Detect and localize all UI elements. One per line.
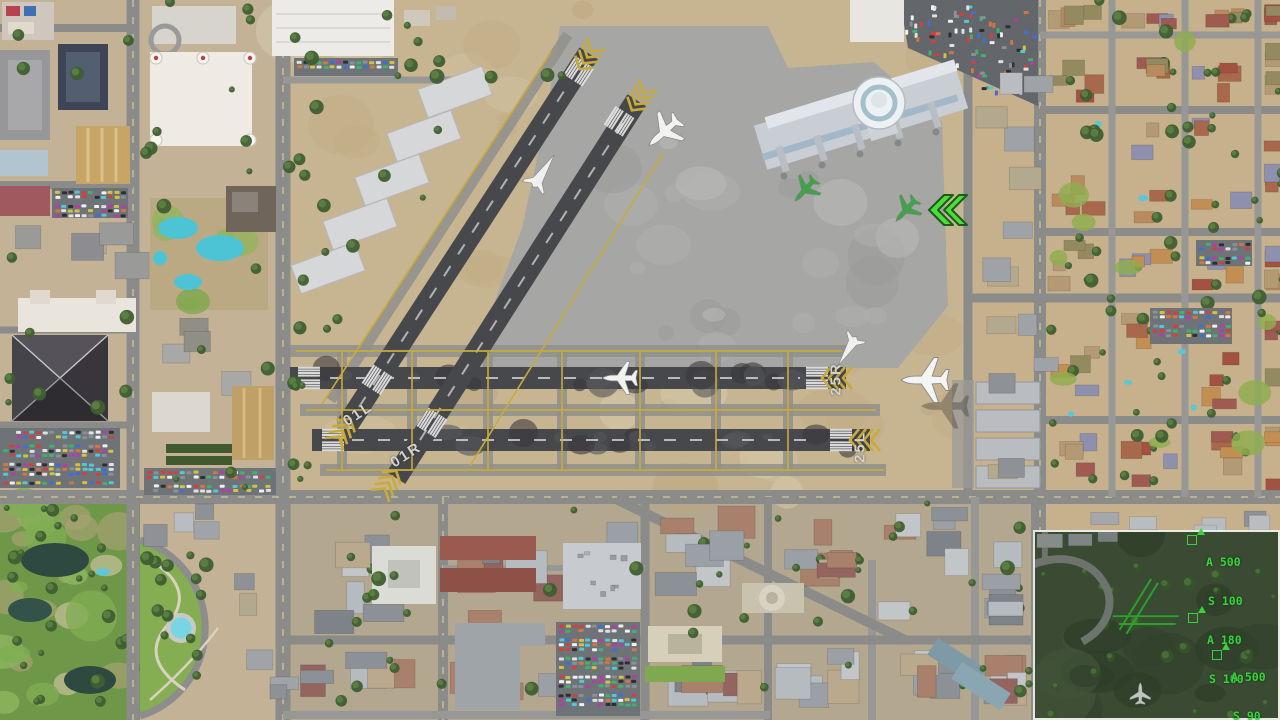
- tree: [158, 200, 166, 208]
- parked-car: [83, 468, 88, 471]
- parked-car: [167, 476, 172, 479]
- parked-car: [931, 5, 934, 10]
- parked-car: [167, 471, 172, 474]
- tree: [1154, 359, 1158, 363]
- building: [1130, 517, 1157, 530]
- tree: [761, 684, 766, 689]
- building: [1264, 432, 1280, 443]
- parked-car: [988, 86, 993, 89]
- ground-texture: [9, 581, 27, 593]
- pool: [1068, 411, 1074, 416]
- parked-car: [356, 61, 361, 64]
- parked-car: [632, 694, 637, 697]
- parked-car: [1199, 334, 1204, 337]
- parking-lot: [556, 622, 640, 716]
- radar-target-labels: A 500 S 90: [1231, 645, 1280, 720]
- parked-car: [565, 630, 570, 633]
- tree: [369, 590, 375, 596]
- building: [878, 602, 910, 620]
- parked-car: [1219, 257, 1224, 260]
- tree: [48, 505, 55, 512]
- parked-car: [1160, 315, 1165, 318]
- parked-car: [213, 476, 218, 479]
- parked-car: [95, 196, 100, 199]
- tree: [174, 477, 177, 480]
- tree: [1171, 252, 1177, 258]
- parked-car: [121, 205, 126, 208]
- tree: [71, 515, 75, 519]
- parked-car: [592, 680, 597, 683]
- parked-car: [586, 699, 591, 702]
- building: [945, 549, 969, 576]
- parked-car: [55, 191, 60, 194]
- parked-car: [559, 648, 564, 651]
- parked-car: [207, 485, 212, 488]
- parked-car: [62, 454, 67, 457]
- tree: [1168, 419, 1174, 425]
- building: [1009, 167, 1041, 190]
- parked-car: [598, 639, 603, 642]
- parked-car: [63, 449, 68, 452]
- ground-texture: [463, 20, 520, 69]
- building: [1266, 72, 1280, 85]
- ground-texture: [658, 325, 674, 340]
- tree: [744, 543, 747, 546]
- parked-car: [983, 38, 986, 43]
- parked-car: [180, 485, 185, 488]
- parked-car: [1179, 315, 1184, 318]
- parked-car: [559, 685, 564, 688]
- parked-car: [977, 75, 982, 78]
- building: [234, 574, 254, 590]
- building: [1249, 515, 1270, 530]
- parked-car: [612, 667, 617, 670]
- parked-car: [585, 662, 590, 665]
- parked-car: [200, 489, 205, 492]
- tree: [348, 554, 353, 559]
- parked-car: [94, 205, 99, 208]
- parked-car: [612, 639, 617, 642]
- tree: [1015, 686, 1022, 693]
- parked-car: [1002, 46, 1007, 49]
- parking-lot: [144, 468, 276, 495]
- parked-car: [605, 681, 610, 684]
- parking-lot: [556, 622, 640, 716]
- gold-tower: [232, 386, 274, 460]
- parked-car: [605, 694, 610, 697]
- parked-car: [598, 625, 603, 628]
- tree: [1081, 90, 1088, 97]
- threshold-bar: [322, 447, 344, 449]
- ground-texture: [568, 435, 595, 454]
- parked-car: [1226, 329, 1231, 332]
- building: [174, 513, 193, 532]
- parked-car: [266, 489, 271, 492]
- parked-car: [9, 454, 14, 457]
- parked-car: [592, 699, 597, 702]
- building: [1265, 246, 1280, 262]
- ground-texture: [802, 248, 839, 278]
- gate-pad: [895, 140, 902, 147]
- building: [315, 610, 354, 633]
- tree: [304, 462, 308, 466]
- radar-minimap[interactable]: A 500 S 100 A 180 S 100 A 500 S 90: [1033, 530, 1280, 720]
- tree: [1153, 213, 1159, 219]
- tree: [1275, 89, 1279, 93]
- castle-flag: [201, 56, 205, 60]
- parked-car: [23, 463, 28, 466]
- parked-car: [598, 629, 603, 632]
- tree: [8, 573, 14, 579]
- runway-label-25R: 25R: [828, 362, 845, 396]
- ground-texture: [572, 1, 593, 20]
- parking-lot: [0, 428, 120, 488]
- parked-car: [82, 481, 87, 484]
- parked-car: [389, 61, 394, 64]
- pool: [174, 274, 202, 290]
- building: [1003, 222, 1032, 239]
- parked-car: [62, 431, 67, 434]
- tree: [1089, 475, 1094, 480]
- ground-texture: [721, 433, 747, 449]
- parked-car: [606, 675, 611, 678]
- tree: [969, 580, 973, 584]
- tree: [434, 126, 439, 131]
- parked-car: [592, 662, 597, 665]
- ground-texture: [676, 166, 727, 200]
- parked-car: [82, 472, 87, 475]
- tree: [1168, 104, 1173, 109]
- parked-car: [1226, 257, 1231, 260]
- building: [1121, 441, 1142, 458]
- tree: [414, 38, 419, 43]
- parked-car: [592, 643, 597, 646]
- parked-car: [330, 61, 335, 64]
- tree: [293, 383, 298, 388]
- parked-car: [56, 449, 61, 452]
- parked-car: [905, 30, 908, 35]
- parked-car: [605, 625, 610, 628]
- parked-car: [625, 657, 630, 660]
- parked-car: [579, 703, 584, 706]
- hangar-apron: [952, 380, 974, 488]
- parked-car: [625, 630, 630, 633]
- tree: [295, 154, 302, 161]
- parked-car: [559, 658, 564, 661]
- parked-car: [612, 694, 617, 697]
- parked-car: [997, 33, 1000, 38]
- parked-car: [62, 468, 67, 471]
- parked-car: [88, 468, 93, 471]
- altitude-readout: A 500: [1206, 556, 1261, 569]
- parked-car: [1206, 257, 1211, 260]
- parked-car: [578, 629, 583, 632]
- parked-car: [102, 214, 107, 217]
- parked-car: [579, 648, 584, 651]
- parked-car: [81, 204, 86, 207]
- tree: [226, 468, 232, 474]
- parked-car: [578, 676, 583, 679]
- parked-car: [76, 444, 81, 447]
- parked-car: [1218, 248, 1223, 251]
- tree: [347, 240, 355, 248]
- parked-car: [566, 643, 571, 646]
- parked-car: [186, 471, 191, 474]
- building: [144, 524, 168, 546]
- parked-car: [612, 685, 617, 688]
- parked-car: [370, 65, 375, 68]
- radar-plane-icon: [1222, 643, 1230, 650]
- hangar: [976, 438, 1040, 460]
- tree: [163, 561, 170, 568]
- parked-car: [995, 90, 998, 95]
- parked-car: [317, 66, 322, 69]
- parked-car: [220, 489, 225, 492]
- parked-car: [592, 625, 597, 628]
- parked-car: [943, 53, 946, 58]
- parked-car: [585, 676, 590, 679]
- tree: [121, 386, 128, 393]
- building: [982, 574, 1020, 590]
- parked-car: [559, 666, 564, 669]
- parked-car: [180, 489, 185, 492]
- parked-car: [55, 209, 60, 212]
- pushback-chevron-indicator[interactable]: [922, 192, 968, 228]
- radar-target-box-icon: [1212, 650, 1222, 660]
- parked-car: [233, 489, 238, 492]
- parked-car: [102, 463, 107, 466]
- building: [0, 186, 50, 216]
- parked-car: [1186, 311, 1191, 314]
- parked-car: [194, 475, 199, 478]
- building: [0, 150, 48, 176]
- tree: [187, 635, 192, 640]
- parked-car: [1206, 311, 1211, 314]
- parked-car: [343, 61, 348, 64]
- parked-car: [350, 61, 355, 64]
- building: [737, 671, 761, 704]
- tree: [390, 572, 395, 577]
- tree: [300, 171, 306, 177]
- tree: [486, 72, 493, 79]
- parked-car: [1239, 243, 1244, 246]
- tree: [337, 696, 343, 702]
- parked-car: [22, 481, 27, 484]
- parked-car: [998, 60, 1003, 63]
- parked-car: [102, 482, 107, 485]
- parked-car: [572, 698, 577, 701]
- parked-car: [377, 66, 382, 69]
- parked-car: [980, 72, 985, 75]
- threshold-bar: [806, 367, 828, 369]
- parked-car: [970, 34, 973, 39]
- parked-car: [173, 490, 178, 493]
- parked-car: [56, 482, 61, 485]
- parked-car: [344, 66, 349, 69]
- radar-target-box-icon: [1187, 535, 1197, 545]
- parked-car: [75, 195, 80, 198]
- tree: [1081, 127, 1089, 135]
- tree: [1212, 68, 1217, 73]
- game-viewport[interactable]: 01L 01R 25R 25L A 500 S 100 A 180 S 100: [0, 0, 1280, 720]
- tree: [420, 195, 423, 198]
- hotel-wing: [30, 290, 50, 304]
- parked-car: [1219, 315, 1224, 318]
- parked-car: [928, 21, 931, 26]
- parked-car: [1206, 325, 1211, 328]
- parked-car: [586, 625, 591, 628]
- threshold-bar: [806, 385, 828, 387]
- parked-car: [82, 450, 87, 453]
- parked-car: [174, 471, 179, 474]
- parked-car: [161, 485, 166, 488]
- parked-car: [1219, 243, 1224, 246]
- parked-car: [55, 473, 60, 476]
- ground-texture: [686, 361, 717, 389]
- parked-car: [1186, 329, 1191, 332]
- parked-car: [911, 15, 914, 20]
- castle-hotel: [150, 52, 252, 146]
- parked-car: [89, 445, 94, 448]
- tree: [1134, 410, 1138, 414]
- tree: [1241, 14, 1246, 19]
- parked-car: [96, 481, 101, 484]
- parked-car: [23, 435, 28, 438]
- tree: [391, 512, 396, 517]
- parked-car: [167, 485, 172, 488]
- parked-car: [363, 61, 368, 64]
- parked-car: [966, 5, 969, 10]
- parked-car: [599, 694, 604, 697]
- parked-car: [934, 53, 939, 56]
- ground-texture: [846, 256, 899, 308]
- parked-car: [1212, 256, 1217, 259]
- tree: [373, 573, 381, 581]
- tree: [243, 485, 246, 488]
- building: [611, 586, 615, 591]
- parked-car: [1199, 261, 1204, 264]
- tree: [121, 311, 129, 319]
- parked-car: [36, 472, 41, 475]
- parked-car: [618, 662, 623, 665]
- parked-car: [606, 703, 611, 706]
- tree: [92, 401, 100, 409]
- tree: [318, 200, 326, 208]
- building: [1211, 431, 1233, 442]
- building: [1147, 65, 1165, 77]
- parked-car: [632, 657, 637, 660]
- parked-car: [971, 68, 974, 73]
- parked-car: [1219, 329, 1224, 332]
- tree: [404, 22, 408, 26]
- parked-car: [1153, 325, 1158, 328]
- parked-car: [9, 463, 14, 466]
- ground-texture: [1050, 250, 1068, 266]
- parked-car: [49, 454, 54, 457]
- parked-car: [383, 61, 388, 64]
- parked-car: [265, 485, 270, 488]
- tree: [697, 581, 701, 585]
- tree: [1093, 247, 1098, 252]
- parked-car: [206, 490, 211, 493]
- parked-car: [612, 625, 617, 628]
- parked-car: [76, 454, 81, 457]
- parked-car: [253, 476, 258, 479]
- parked-car: [605, 630, 610, 633]
- parked-car: [180, 471, 185, 474]
- parked-car: [559, 699, 564, 702]
- parked-car: [1219, 324, 1224, 327]
- tree: [4, 506, 7, 509]
- parked-car: [565, 638, 570, 641]
- tree: [1026, 681, 1030, 685]
- tree: [1165, 237, 1172, 244]
- building: [1226, 266, 1244, 283]
- parked-car: [1160, 329, 1165, 332]
- parked-car: [61, 205, 66, 208]
- building: [591, 581, 596, 585]
- parked-car: [75, 468, 80, 471]
- tree: [200, 559, 208, 567]
- parked-car: [1199, 256, 1204, 259]
- building: [1034, 357, 1058, 371]
- parked-car: [1159, 325, 1164, 328]
- parked-car: [76, 472, 81, 475]
- casino-sign: [6, 6, 20, 16]
- parked-car: [931, 32, 936, 35]
- building: [152, 392, 210, 432]
- building: [1064, 6, 1083, 25]
- ground-texture: [802, 424, 829, 444]
- parked-car: [559, 675, 564, 678]
- parked-car: [9, 468, 14, 471]
- parked-car: [102, 210, 107, 213]
- parked-car: [572, 657, 577, 660]
- parked-car: [220, 485, 225, 488]
- ground-texture: [636, 225, 691, 265]
- tree: [252, 264, 258, 270]
- parked-car: [971, 53, 976, 56]
- parked-car: [579, 639, 584, 642]
- parked-car: [618, 657, 623, 660]
- parked-car: [959, 13, 964, 16]
- tree: [77, 576, 81, 580]
- parked-car: [559, 625, 564, 628]
- parked-car: [1212, 262, 1217, 265]
- parked-car: [996, 28, 999, 33]
- parked-car: [572, 694, 577, 697]
- parked-car: [147, 476, 152, 479]
- parked-car: [579, 694, 584, 697]
- parked-car: [618, 703, 623, 706]
- tree: [842, 590, 850, 598]
- parked-car: [16, 435, 21, 438]
- ground-texture: [1059, 182, 1089, 207]
- tree: [1204, 70, 1208, 74]
- tree: [353, 618, 359, 624]
- parked-car: [612, 681, 617, 684]
- building: [1265, 43, 1280, 60]
- casino-sign: [24, 6, 36, 16]
- ground-texture: [333, 126, 380, 159]
- building: [1048, 276, 1070, 291]
- parked-car: [598, 648, 603, 651]
- tree: [1157, 431, 1164, 438]
- threshold-bar: [830, 429, 852, 431]
- gate-pad: [933, 129, 940, 136]
- tree: [14, 30, 20, 36]
- ground-texture: [1114, 260, 1142, 275]
